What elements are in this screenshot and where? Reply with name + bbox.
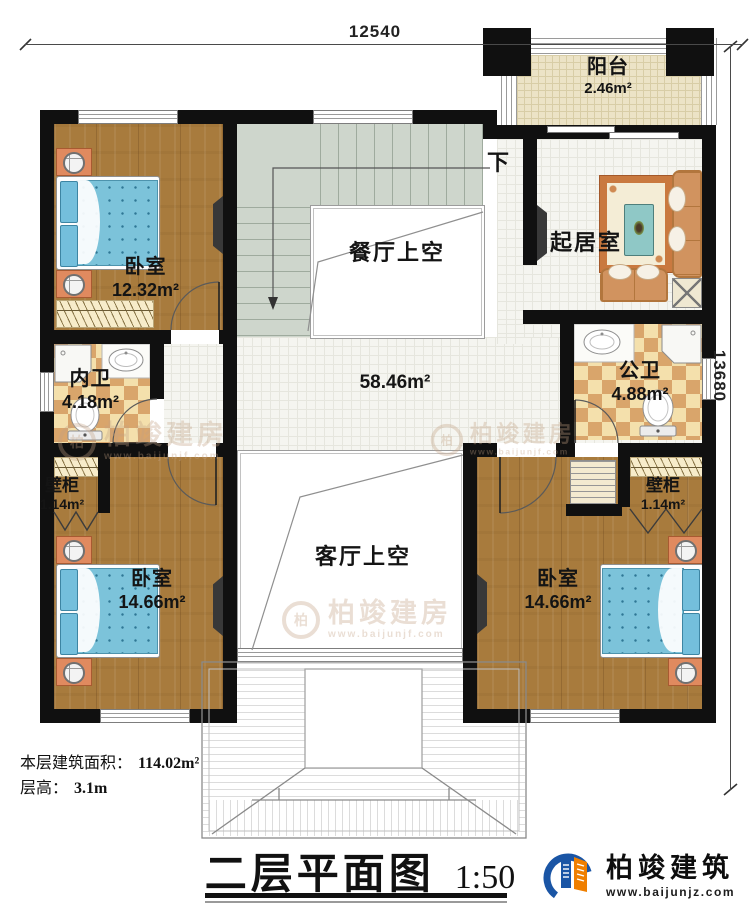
brand-name: 柏竣建筑 <box>606 855 735 882</box>
closet-right-rack <box>630 457 704 477</box>
wall-innerbath-bottom <box>40 443 164 457</box>
wall-shelf-bottom <box>566 504 622 516</box>
window <box>78 110 178 124</box>
living-void-label: 客厅上空 <box>288 544 438 570</box>
brand-logo-icon <box>540 848 598 906</box>
wall-left-outer <box>40 110 54 723</box>
sliding-door-panel <box>609 132 679 139</box>
door-opening <box>168 443 216 457</box>
wall-void-right <box>463 443 477 723</box>
dimension-right-value: 13680 <box>709 341 729 411</box>
bed-sheet <box>658 568 682 652</box>
hall-area-label: 58.46m² <box>330 372 460 394</box>
sofa-cushion <box>636 264 660 280</box>
balcony-column <box>483 28 531 76</box>
closet-left-rack <box>54 457 100 477</box>
title-scale: 1:50 <box>455 859 515 897</box>
door-opening <box>497 443 556 457</box>
floor-area-label: 本层建筑面积： <box>20 755 132 772</box>
window <box>530 709 620 723</box>
hall-floor-patch <box>497 324 560 337</box>
bedroom-top-left-label: 卧室12.32m² <box>88 256 203 301</box>
end-table <box>672 278 702 308</box>
wall-living-bottom <box>523 310 716 324</box>
floor-area-value: 114.02m² <box>138 755 199 772</box>
tv-icon <box>213 196 223 254</box>
dimension-top-value: 12540 <box>300 22 450 42</box>
wall-right-outer <box>702 139 716 723</box>
bedroom-bottom-left-label: 卧室14.66m² <box>92 568 212 613</box>
wall-bedroom1-right <box>223 110 237 344</box>
balcony-label: 阳台2.46m² <box>558 56 658 97</box>
public-bathroom-label: 公卫4.88m² <box>595 360 685 405</box>
bed-pillow <box>682 613 700 655</box>
door-opening <box>575 443 618 457</box>
tv-icon <box>477 574 487 634</box>
floor-height-value: 3.1m <box>74 780 107 797</box>
drawing-title: 二层平面图 1:50 <box>180 840 540 901</box>
wardrobe-rack <box>56 300 154 328</box>
inner-bathroom-label: 内卫4.18m² <box>48 368 133 413</box>
title-text: 二层平面图 <box>205 840 435 901</box>
tv-icon <box>213 576 223 636</box>
bedroom-bottom-right-label: 卧室14.66m² <box>498 568 618 613</box>
dimension-line-right <box>730 46 731 790</box>
door-opening <box>171 330 219 344</box>
brand-logo: 柏竣建筑 www.baijunjz.com <box>540 848 735 906</box>
nightstand <box>56 536 92 564</box>
stair-treads-lower <box>237 207 310 337</box>
closet-right-label: 壁柜1.14m² <box>622 476 704 513</box>
brand-website: www.baijunjz.com <box>606 885 735 899</box>
wall-publicbath-left <box>560 310 574 443</box>
balcony-column <box>666 28 714 76</box>
dining-void-label: 餐厅上空 <box>318 240 476 266</box>
wall-void-left <box>223 344 237 723</box>
floor-height-label: 层高： <box>20 780 68 797</box>
bed-pillow <box>60 569 78 611</box>
bed-pillow <box>60 613 78 655</box>
floor-plan-canvas: 柏 柏竣建房www.baijunjf.com 柏 柏竣建房www.baijunj… <box>0 0 750 918</box>
floor-info: 本层建筑面积：114.02m² 层高：3.1m <box>20 752 199 802</box>
nightstand <box>56 148 92 176</box>
sliding-door-panel <box>547 126 615 133</box>
down-label: 下 <box>484 150 514 176</box>
window <box>100 709 190 723</box>
porch-roof-hatch-lower <box>209 800 519 836</box>
title-underline <box>205 893 507 898</box>
window <box>313 110 413 124</box>
nightstand <box>56 658 92 686</box>
closet-left-label: 壁柜1.14m² <box>22 476 102 513</box>
sofa-cushion <box>608 264 632 280</box>
nightstand <box>668 658 704 686</box>
sofa-cushion <box>668 186 686 212</box>
bed-pillow <box>60 181 78 223</box>
wall-living-left <box>523 139 537 265</box>
dimension-line-top <box>25 44 743 45</box>
sofa-cushion <box>668 226 686 252</box>
stair-treads-upper <box>320 124 483 207</box>
bed-pillow <box>60 225 78 267</box>
closet-shelf <box>570 460 616 506</box>
void-railing-window <box>237 648 463 662</box>
door-opening <box>150 399 164 443</box>
wall-innerbath-right <box>150 344 164 399</box>
dining-void-area <box>310 205 485 339</box>
nightstand <box>668 536 704 564</box>
nightstand <box>56 270 92 298</box>
living-room-label: 起居室 <box>538 230 634 256</box>
bed-pillow <box>682 569 700 611</box>
title-underline-light <box>205 901 507 903</box>
